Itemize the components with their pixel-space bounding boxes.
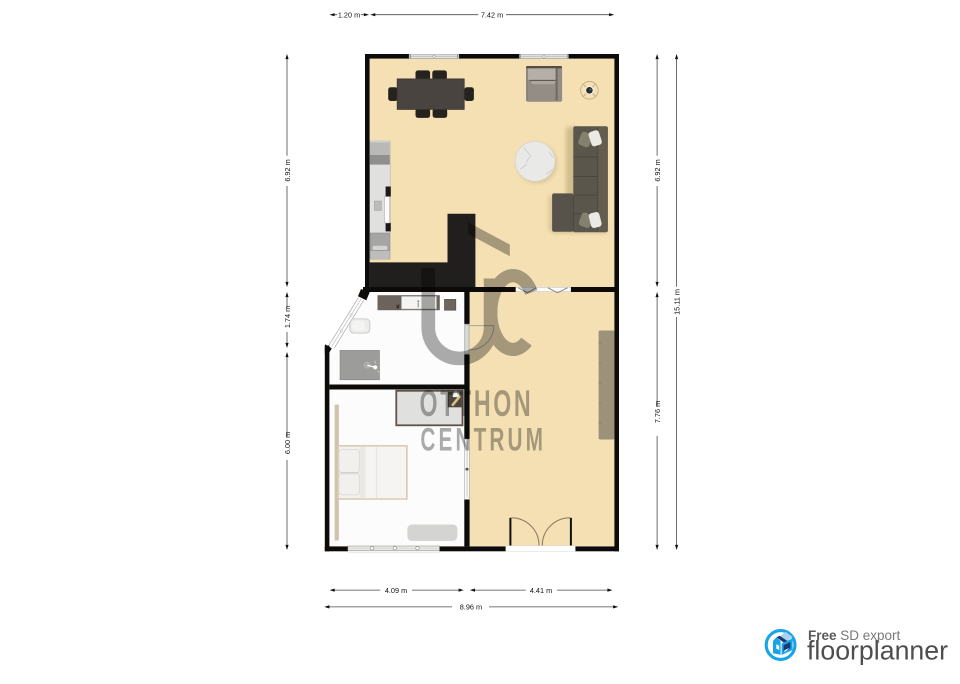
- svg-text:6.00 m: 6.00 m: [283, 432, 292, 454]
- svg-text:4.41 m: 4.41 m: [530, 586, 552, 595]
- svg-text:floorplanner: floorplanner: [807, 635, 948, 665]
- svg-text:1.20 m: 1.20 m: [338, 11, 360, 20]
- svg-text:8.96 m: 8.96 m: [460, 603, 482, 612]
- svg-text:CENTRUM: CENTRUM: [420, 422, 546, 458]
- svg-text:1.74 m: 1.74 m: [283, 306, 292, 328]
- svg-text:15.11 m: 15.11 m: [672, 289, 681, 315]
- svg-text:4.09 m: 4.09 m: [385, 586, 407, 595]
- svg-text:7.76 m: 7.76 m: [653, 401, 662, 423]
- svg-text:7.42 m: 7.42 m: [481, 11, 503, 20]
- svg-text:OTTHON: OTTHON: [420, 383, 534, 425]
- svg-text:6.92 m: 6.92 m: [283, 159, 292, 181]
- svg-text:6.92 m: 6.92 m: [653, 159, 662, 181]
